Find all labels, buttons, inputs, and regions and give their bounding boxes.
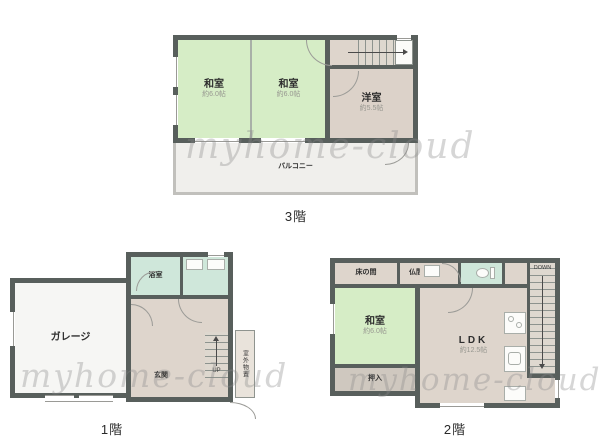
room-label: LDK	[459, 335, 489, 347]
floor-plan-3f: 和室 約6.0帖 和室 約6.0帖 洋室 約5.5帖 バルコニー	[173, 35, 418, 195]
room-tokonoma: 床の間	[335, 263, 397, 284]
room-label: 押入	[368, 375, 382, 383]
storage-label: 室外物置	[241, 350, 250, 378]
floor-caption-2f: 2階	[425, 419, 485, 437]
room-label: 和室	[365, 316, 385, 328]
room-washitsu-1: 和室 約6.0帖	[178, 40, 250, 138]
room-label: 床の間	[356, 269, 377, 277]
stairs-up-label: UP	[205, 368, 228, 374]
room-label: ガレージ	[51, 332, 91, 344]
window-marker	[10, 312, 15, 346]
room-size: 約6.0帖	[202, 91, 226, 99]
floorplan-image: 和室 約6.0帖 和室 約6.0帖 洋室 約5.5帖 バルコニー myhome-…	[0, 0, 600, 437]
outdoor-storage: 室外物置	[235, 330, 255, 398]
floor-plan-2f: 床の間 仏間 和室 約6.0帖 押入 LDK 約12.5帖 DOWN	[330, 256, 562, 424]
garage-door-tick	[74, 393, 79, 398]
stair-direction-line	[216, 340, 217, 366]
window-marker	[397, 35, 411, 40]
washing-machine-icon	[186, 259, 203, 270]
window-marker	[440, 403, 484, 408]
floor-caption-1f: 1階	[82, 419, 142, 437]
stair-arrow-icon	[539, 364, 545, 369]
room-size: 約12.5帖	[460, 347, 488, 355]
room-size: 約6.0帖	[363, 328, 387, 336]
hall-top-2f	[505, 263, 527, 284]
window-marker	[330, 304, 335, 334]
sliding-door-divider	[250, 40, 252, 138]
window-marker	[555, 380, 560, 398]
stair-arrow-icon	[213, 336, 219, 341]
stove-burner-icon	[516, 322, 522, 328]
balcony-label: バルコニー	[278, 163, 313, 171]
entrance-door-arc	[230, 402, 256, 419]
window-marker	[208, 252, 224, 257]
window-marker	[261, 138, 305, 143]
window-marker	[173, 95, 178, 125]
room-washitsu-2f: 和室 約6.0帖	[335, 288, 415, 364]
room-garage: ガレージ	[15, 283, 126, 393]
stair-direction-line	[348, 52, 403, 53]
hall-lower-right-2f	[527, 378, 555, 403]
toilet-tank-icon	[490, 267, 495, 279]
room-size: 約6.0帖	[277, 91, 301, 99]
entrance-label: 玄関	[138, 372, 184, 380]
room-label: 洋室	[362, 93, 382, 105]
refrigerator-icon	[504, 386, 526, 401]
stairs-down-label: DOWN	[530, 265, 555, 271]
stair-arrow-icon	[403, 49, 408, 55]
balcony-3f: バルコニー	[173, 143, 418, 195]
room-oshiire: 押入	[335, 368, 415, 391]
washbasin-icon	[207, 259, 225, 270]
toilet-icon	[476, 268, 489, 278]
room-label: 和室	[204, 79, 224, 91]
kitchen-stove-icon	[504, 312, 526, 334]
room-size: 約5.5帖	[360, 105, 384, 113]
stove-burner-icon	[508, 316, 514, 322]
sink-basin-icon	[508, 352, 521, 365]
floor-caption-3f: 3階	[266, 206, 326, 225]
garage-door	[45, 395, 113, 402]
window-marker	[195, 138, 239, 143]
floor-plan-1f: ガレージ 浴室 玄関 UP 室外物置	[10, 252, 262, 432]
stair-direction-line	[542, 276, 543, 366]
room-label: 和室	[279, 79, 299, 91]
window-marker	[173, 57, 178, 87]
washbasin-icon	[424, 265, 440, 277]
